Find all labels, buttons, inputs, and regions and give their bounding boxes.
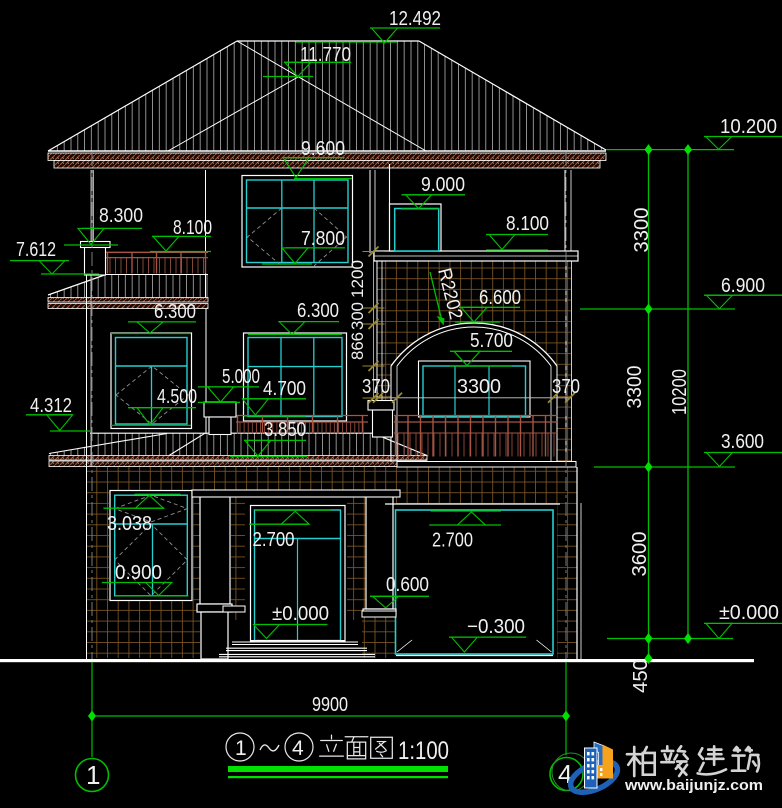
svg-text:10200: 10200 [669,369,691,415]
svg-text:3300: 3300 [624,366,646,409]
svg-text:1: 1 [86,760,100,790]
svg-text:0.600: 0.600 [386,574,429,596]
svg-text:12.492: 12.492 [389,8,441,30]
svg-text:0.900: 0.900 [115,562,162,584]
svg-text:6.300: 6.300 [154,301,196,323]
svg-text:±0.000: ±0.000 [272,603,329,625]
svg-text:9.000: 9.000 [421,174,465,196]
svg-text:1: 1 [235,737,247,760]
svg-text:8.300: 8.300 [99,205,143,227]
svg-text:−0.300: −0.300 [467,616,525,638]
svg-text:3.850: 3.850 [264,419,306,441]
svg-text:9.600: 9.600 [301,138,345,160]
svg-text:3600: 3600 [629,532,651,577]
svg-text:3.038: 3.038 [107,513,152,535]
svg-text:3300: 3300 [457,376,501,398]
svg-text:3.600: 3.600 [721,431,764,453]
svg-text:7.800: 7.800 [301,228,345,250]
svg-text:370: 370 [362,376,390,398]
svg-text:11.770: 11.770 [300,44,351,66]
svg-text:1:100: 1:100 [398,737,449,765]
svg-text:4.312: 4.312 [30,395,72,417]
svg-text:300: 300 [348,302,367,330]
svg-text:2.700: 2.700 [432,530,473,552]
svg-text:7.612: 7.612 [16,239,56,261]
svg-text:2.700: 2.700 [253,529,295,551]
svg-text:5.700: 5.700 [470,330,513,352]
svg-text:1200: 1200 [348,260,367,298]
svg-text:6.600: 6.600 [479,287,521,309]
svg-text:±0.000: ±0.000 [719,602,779,624]
svg-text:450: 450 [630,659,652,693]
svg-text:9900: 9900 [312,694,348,716]
svg-text:8.100: 8.100 [173,217,212,239]
svg-text:866: 866 [348,332,367,360]
svg-text:www.baijunjz.com: www.baijunjz.com [624,777,763,794]
svg-text:370: 370 [552,376,580,398]
svg-text:4.700: 4.700 [263,378,306,400]
svg-text:4.500: 4.500 [157,386,197,408]
svg-text:6.300: 6.300 [297,300,339,322]
svg-text:5.000: 5.000 [222,366,260,388]
svg-text:10.200: 10.200 [720,116,777,138]
svg-text:4: 4 [292,737,304,760]
svg-text:8.100: 8.100 [506,213,549,235]
svg-text:3300: 3300 [631,208,653,253]
svg-text:6.900: 6.900 [721,275,765,297]
